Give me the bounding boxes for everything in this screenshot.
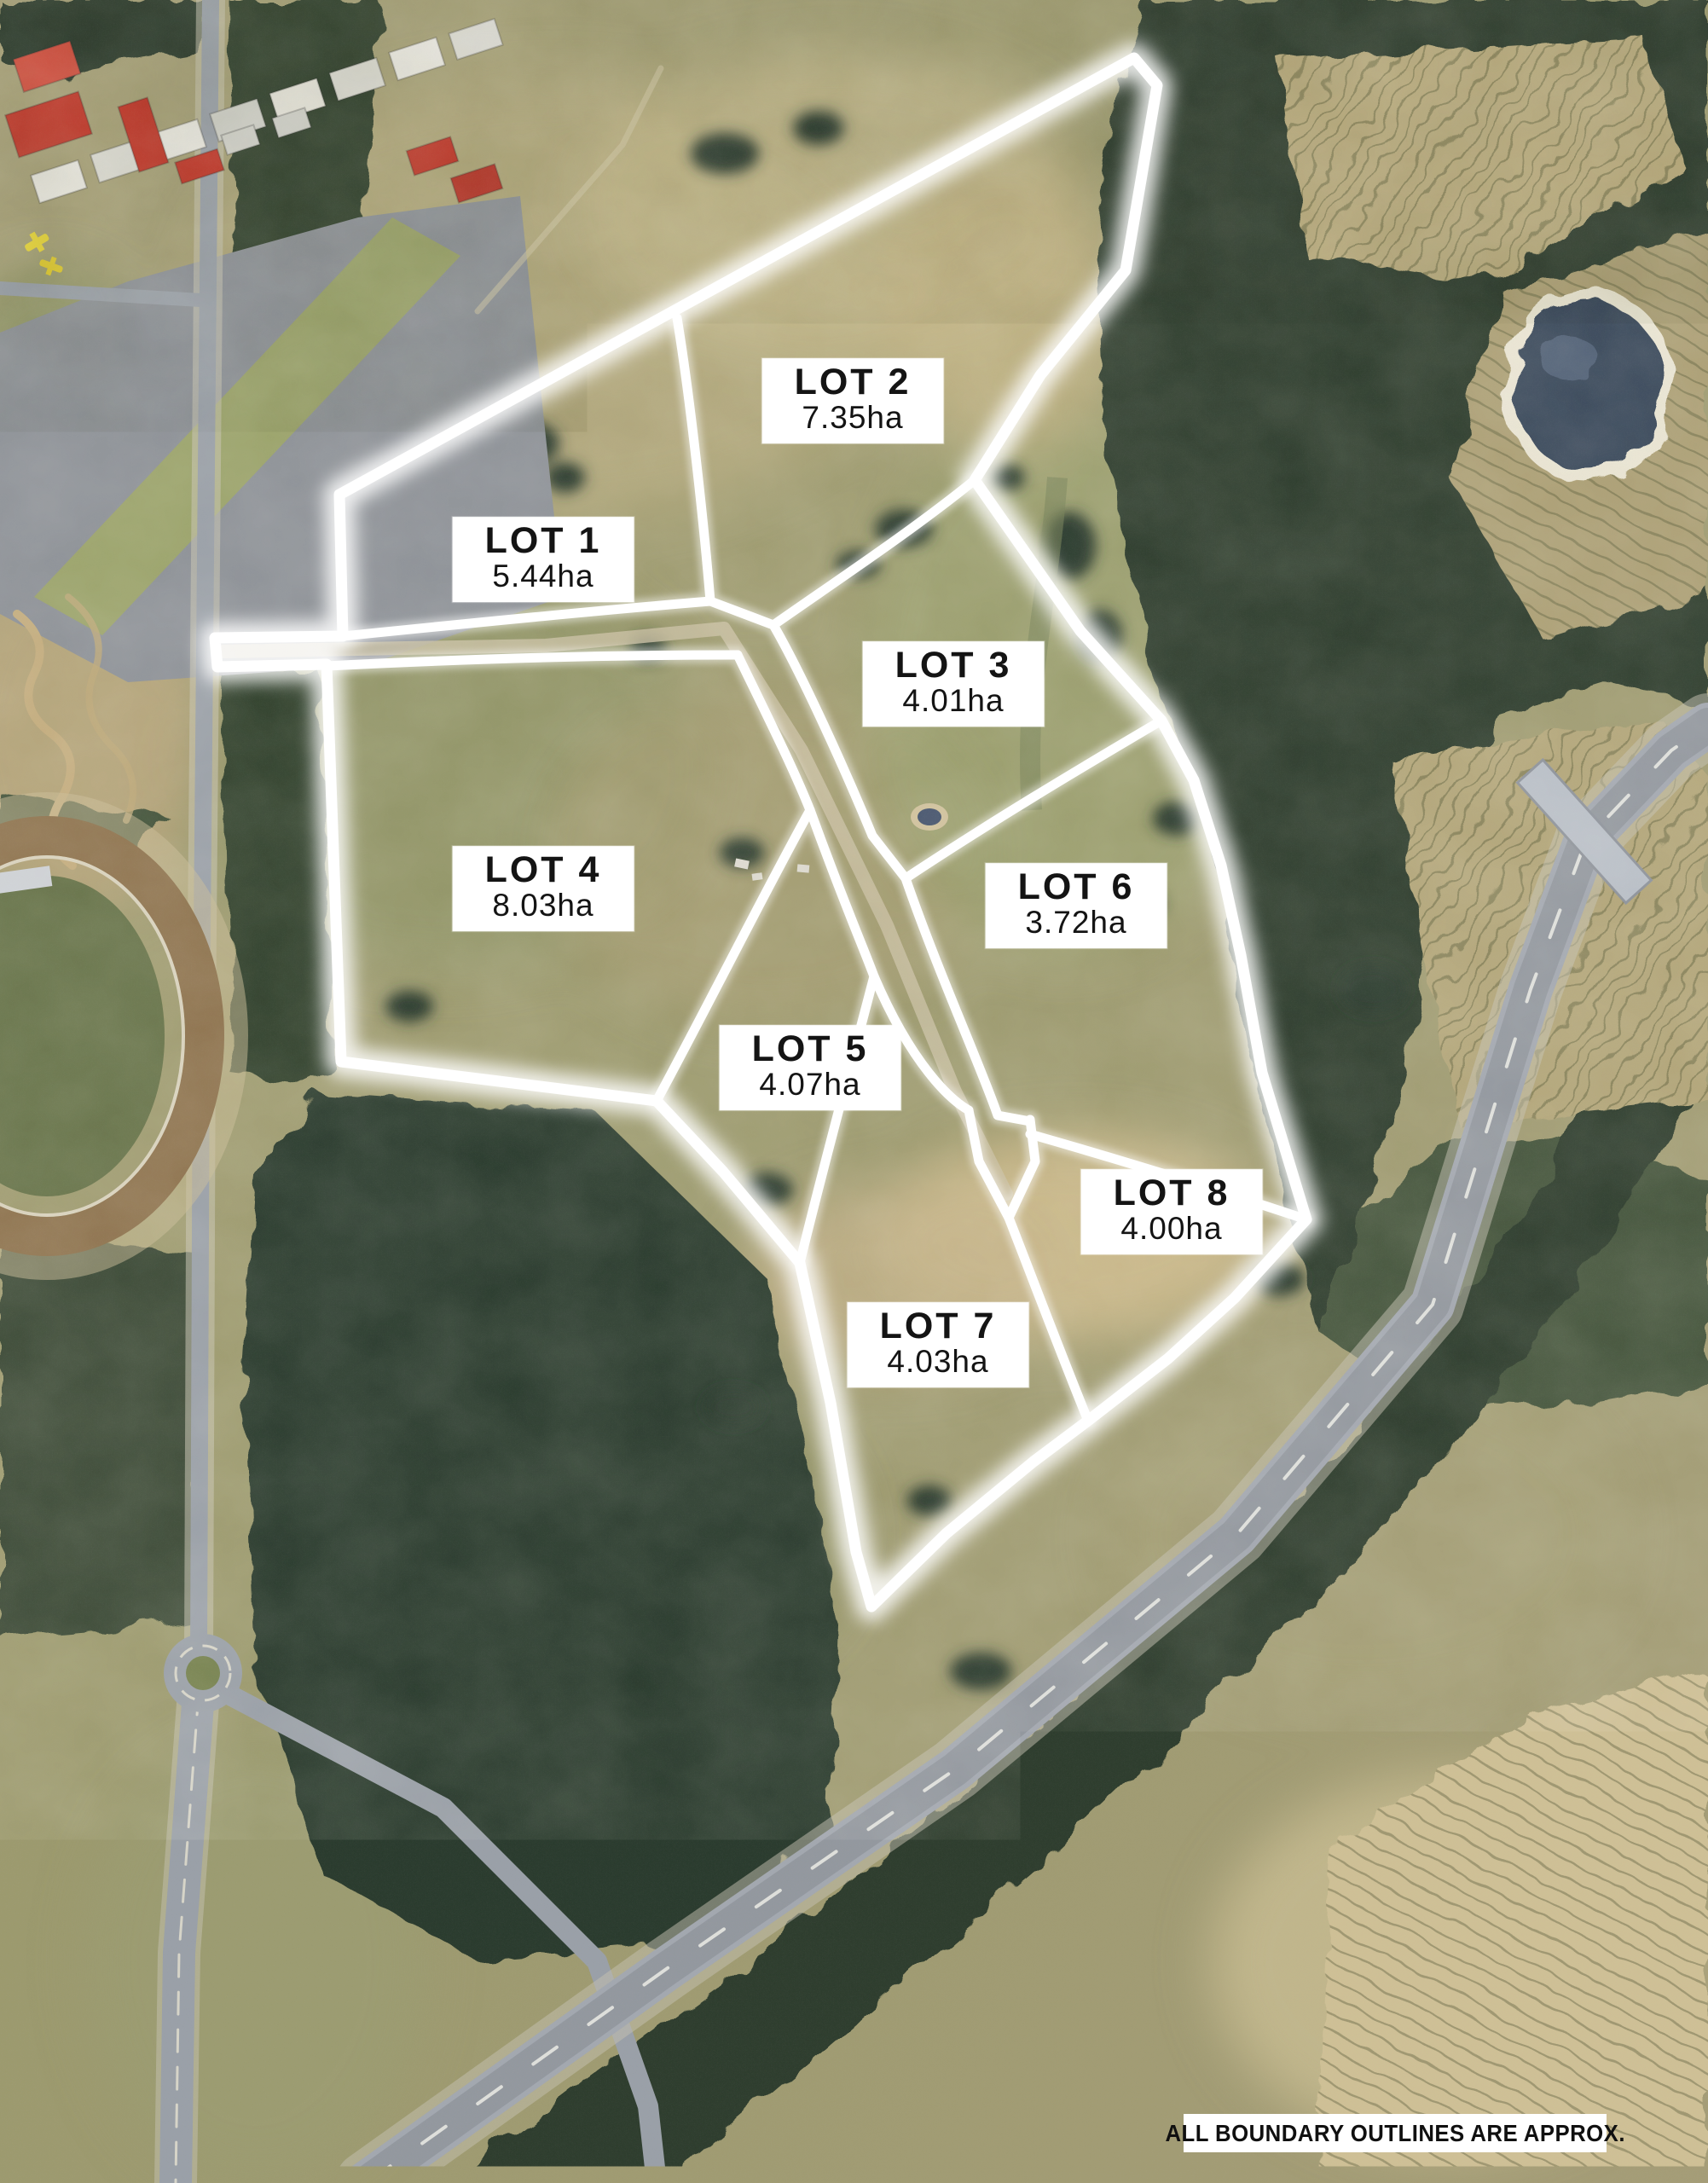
lot-area: 8.03ha: [485, 889, 602, 923]
disclaimer-text: ALL BOUNDARY OUTLINES ARE APPROX.: [1165, 2120, 1624, 2147]
lot-area: 5.44ha: [485, 560, 602, 594]
lot-area: 4.01ha: [895, 685, 1012, 718]
lot-label-lot-3: LOT 3 4.01ha: [863, 641, 1045, 727]
lot-area: 4.07ha: [752, 1068, 869, 1102]
lot-title: LOT 8: [1114, 1175, 1230, 1213]
lot-label-lot-1: LOT 1 5.44ha: [453, 517, 634, 602]
lot-label-lot-5: LOT 5 4.07ha: [720, 1025, 901, 1110]
lot-label-lot-8: LOT 8 4.00ha: [1081, 1169, 1263, 1254]
lot-labels-layer: LOT 1 5.44ha LOT 2 7.35ha LOT 3 4.01ha L…: [0, 0, 1708, 2183]
lot-area: 3.72ha: [1018, 906, 1135, 940]
lot-title: LOT 4: [485, 852, 602, 889]
lot-title: LOT 5: [752, 1031, 869, 1068]
lot-title: LOT 1: [485, 523, 602, 560]
lot-area: 7.35ha: [795, 402, 912, 435]
lot-label-lot-7: LOT 7 4.03ha: [848, 1302, 1029, 1387]
lot-title: LOT 7: [880, 1308, 997, 1346]
lot-label-lot-6: LOT 6 3.72ha: [986, 863, 1167, 948]
lot-area: 4.03ha: [880, 1346, 997, 1379]
lot-area: 4.00ha: [1114, 1213, 1230, 1246]
lot-label-lot-4: LOT 4 8.03ha: [453, 846, 634, 931]
lot-title: LOT 2: [795, 364, 912, 402]
lot-title: LOT 3: [895, 647, 1012, 685]
lot-label-lot-2: LOT 2 7.35ha: [762, 358, 944, 443]
disclaimer-banner: ALL BOUNDARY OUTLINES ARE APPROX.: [1184, 2114, 1607, 2152]
lot-title: LOT 6: [1018, 869, 1135, 906]
aerial-lot-map: LOT 1 5.44ha LOT 2 7.35ha LOT 3 4.01ha L…: [0, 0, 1708, 2183]
